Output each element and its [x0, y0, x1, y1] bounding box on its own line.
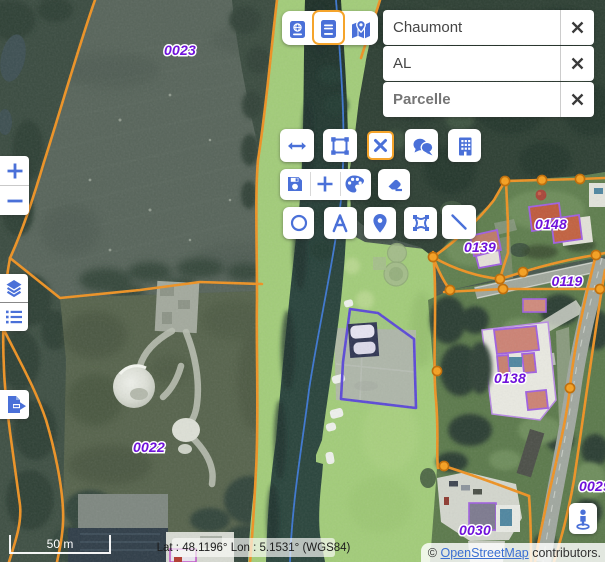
svg-text:0030: 0030	[459, 522, 491, 538]
svg-text:50 m: 50 m	[47, 537, 74, 551]
svg-text:0119: 0119	[552, 273, 583, 289]
svg-text:0138: 0138	[494, 370, 526, 386]
svg-text:0148: 0148	[535, 216, 567, 232]
svg-text:0029: 0029	[579, 478, 605, 494]
svg-text:0023: 0023	[164, 42, 196, 58]
svg-text:0139: 0139	[464, 239, 496, 255]
svg-text:0022: 0022	[133, 439, 165, 455]
